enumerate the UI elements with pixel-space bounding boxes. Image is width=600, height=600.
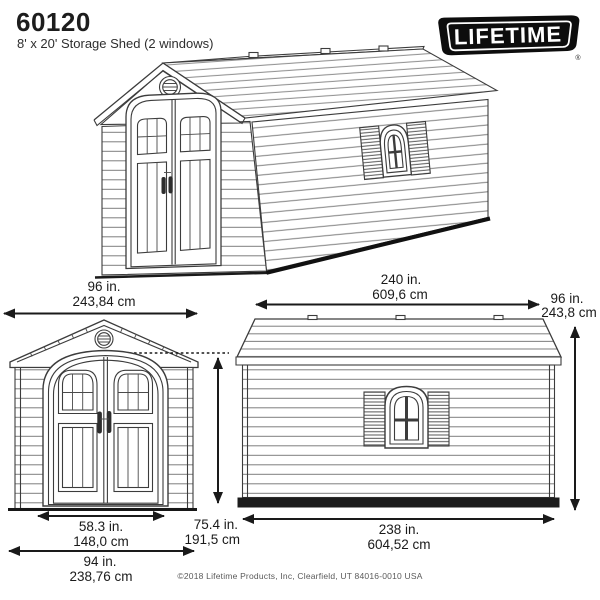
door-width-label-cm: 148,0 cm: [73, 534, 129, 549]
gable-vent: [95, 330, 113, 348]
copyright-text: ©2018 Lifetime Products, Inc, Clearfield…: [0, 571, 600, 581]
shutter-left: [364, 392, 385, 446]
lifetime-logo: LIFETIME ®: [438, 15, 581, 62]
fascia: [236, 357, 561, 365]
overall-height-label-cm: 243,8 cm: [541, 305, 597, 320]
base-length-label-cm: 604,52 cm: [367, 537, 430, 552]
front-doors: [43, 351, 168, 507]
door-height-label-in: 75.4 in.: [194, 517, 238, 532]
front-elevation-drawing: [8, 320, 229, 510]
roof: [237, 319, 561, 357]
dimension-diagram: LIFETIME ®: [0, 0, 600, 600]
door-right-panel: [181, 159, 211, 250]
shutter-right: [428, 392, 449, 446]
perspective-view-drawing: [94, 46, 497, 278]
door-handle-left: [97, 412, 102, 434]
base-strip: [238, 498, 560, 508]
door-width-label-in: 58.3 in.: [79, 519, 123, 534]
door-handle-right: [107, 411, 112, 433]
logo-text: LIFETIME: [454, 21, 563, 49]
base-length-label-in: 238 in.: [379, 522, 420, 537]
perspective-side-window: [360, 122, 431, 180]
registered-symbol: ®: [575, 54, 581, 62]
door-handle-left: [162, 177, 166, 194]
base-width-label-in: 94 in.: [83, 554, 116, 569]
spec-sheet: 60120 8' x 20' Storage Shed (2 windows): [0, 0, 600, 600]
overall-height-label-in: 96 in.: [550, 291, 583, 306]
side-window: [364, 387, 449, 449]
side-length-label-in: 240 in.: [381, 272, 422, 287]
door-handle-right: [169, 176, 173, 193]
side-length-label-cm: 609,6 cm: [372, 287, 428, 302]
side-wall: [252, 100, 488, 272]
front-width-label-cm: 243,84 cm: [72, 294, 135, 309]
side-elevation-drawing: [236, 316, 561, 508]
door-left-panel: [59, 424, 98, 492]
perspective-front-doors: [126, 93, 221, 268]
front-width-label-in: 96 in.: [87, 279, 120, 294]
door-left-panel: [138, 162, 167, 253]
door-height-label-cm: 191,5 cm: [184, 532, 240, 547]
door-right-panel: [114, 424, 153, 492]
